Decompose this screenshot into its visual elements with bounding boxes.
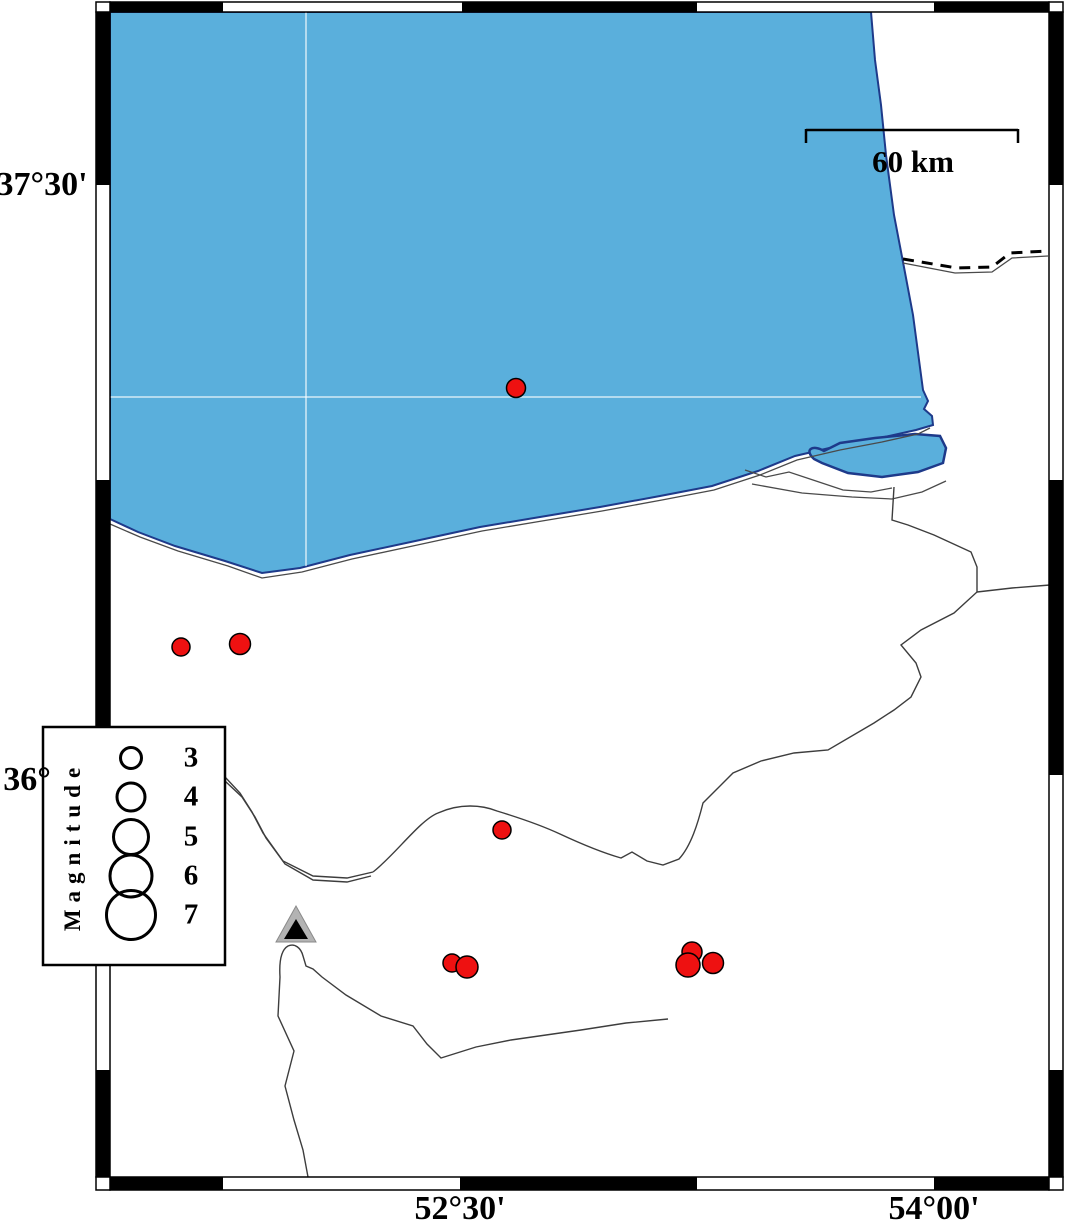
legend-magnitude-value: 5	[184, 821, 199, 854]
scale-bar-label: 60 km	[872, 144, 954, 180]
map-canvas	[0, 0, 1066, 1229]
legend-title-magnitude: Magnitude	[60, 761, 86, 931]
earthquake-epicenter-marker	[676, 953, 700, 977]
latitude-label-37-30: 37°30'	[0, 166, 88, 204]
legend-magnitude-value: 3	[184, 742, 199, 775]
earthquake-epicenter-marker	[507, 379, 526, 398]
longitude-label-54-00: 54°00'	[888, 1190, 979, 1228]
map-figure: 37°30' 36° 52°30' 54°00' 60 km Magnitude…	[0, 0, 1066, 1229]
earthquake-epicenter-marker	[230, 634, 251, 655]
earthquake-epicenter-marker	[493, 821, 511, 839]
river-lines	[225, 487, 1050, 1177]
earthquake-epicenter-marker	[703, 953, 724, 974]
earthquake-epicenter-marker	[172, 638, 190, 656]
latitude-label-36: 36°	[3, 761, 51, 799]
international-border-dashed-line	[903, 251, 1048, 268]
station-triangle-marker	[276, 906, 316, 942]
longitude-label-52-30: 52°30'	[414, 1190, 505, 1228]
legend-magnitude-value: 4	[184, 781, 199, 814]
legend-magnitude-value: 6	[184, 860, 199, 893]
legend-magnitude-value: 7	[184, 899, 199, 932]
earthquake-epicenter-marker	[456, 956, 478, 978]
caspian-sea-polygon	[110, 12, 933, 573]
